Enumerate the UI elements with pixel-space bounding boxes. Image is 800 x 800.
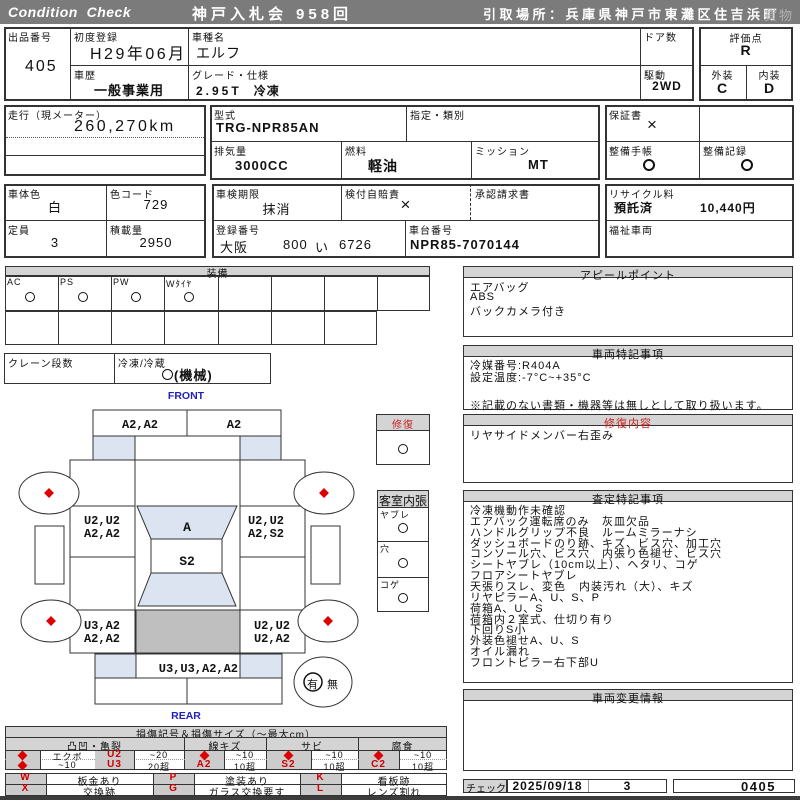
svg-text:A: A	[183, 520, 191, 535]
svg-text:U2,A2: U2,A2	[254, 632, 290, 646]
svg-text:A2,S2: A2,S2	[248, 527, 284, 541]
svg-text:A2,A2: A2,A2	[122, 418, 158, 432]
svg-text:U2,U2: U2,U2	[248, 514, 284, 528]
svg-text:A2,A2: A2,A2	[84, 527, 120, 541]
svg-text:U3,U3,A2,A2: U3,U3,A2,A2	[159, 662, 238, 676]
svg-text:A2,A2: A2,A2	[84, 632, 120, 646]
svg-text:U3,A2: U3,A2	[84, 619, 120, 633]
svg-text:A2: A2	[227, 418, 241, 432]
svg-text:S2: S2	[179, 554, 195, 569]
svg-text:U2,U2: U2,U2	[84, 514, 120, 528]
svg-text:U2,U2: U2,U2	[254, 619, 290, 633]
